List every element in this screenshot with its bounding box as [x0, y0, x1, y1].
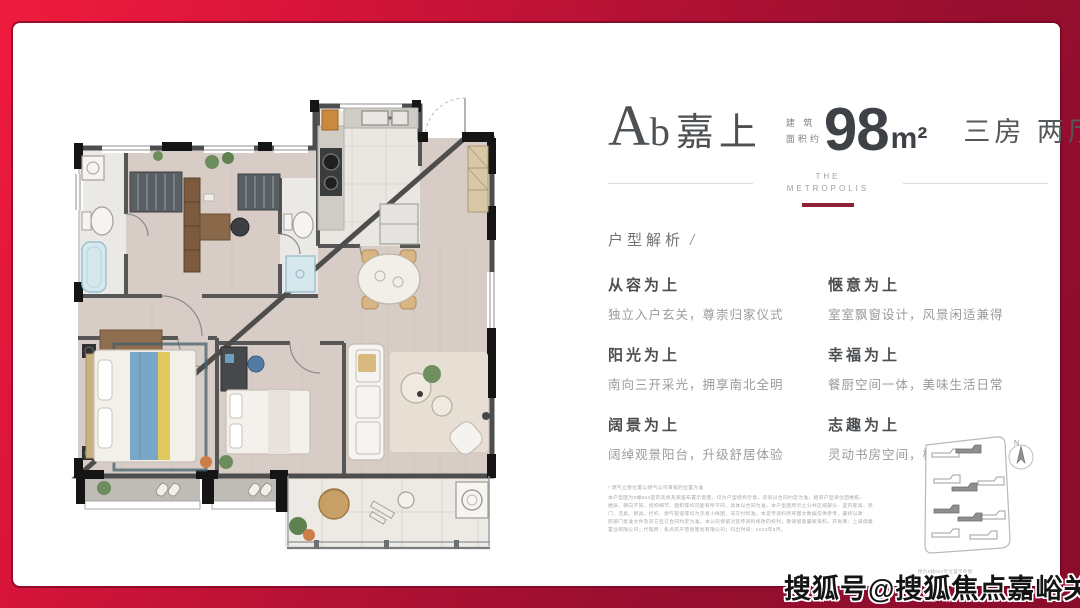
- appliance-icon: [322, 110, 338, 130]
- dining-area: [358, 250, 420, 309]
- plan-name-cn: 嘉上: [676, 112, 762, 154]
- blanket-yellow: [158, 352, 170, 460]
- red-border-frame: Ab嘉上 建 筑 面积约 98 m² 三房 两厅 两卫 THE METROPOL…: [0, 0, 1080, 608]
- slash-decoration: /: [690, 232, 698, 249]
- bathtub-icon: [82, 242, 106, 292]
- gas-pipe-note: * 燃气立管位置以燃气公司审核的位置为准: [608, 485, 913, 493]
- plant-icon: [153, 151, 163, 161]
- floor-plan: [62, 86, 525, 572]
- plant-pot: [303, 529, 315, 541]
- side-table-icon: [398, 492, 414, 508]
- plan-name-sub: b: [650, 109, 670, 154]
- hanging-chair-icon: [319, 489, 349, 519]
- desk-icon: [221, 347, 247, 391]
- feature-item: 阔景为上 阔绰观景阳台，升级舒居体验: [608, 414, 828, 463]
- pillow: [230, 394, 242, 418]
- dresser-icon: [100, 330, 162, 350]
- dining-table-icon: [358, 254, 420, 304]
- feature-item: 阳光为上 南向三开采光，拥享南北全明: [608, 344, 828, 393]
- watermark-text: 搜狐号@搜狐焦点嘉峪关站: [784, 567, 1080, 606]
- section-title: 户型解析/: [608, 229, 1048, 250]
- brand-row: THE METROPOLIS: [608, 171, 1048, 195]
- content-panel: Ab嘉上 建 筑 面积约 98 m² 三房 两厅 两卫 THE METROPOL…: [13, 23, 1060, 586]
- headboard: [86, 354, 94, 458]
- toilet-icon: [293, 212, 313, 238]
- blanket: [268, 390, 290, 454]
- feature-item: 从容为上 独立入户玄关，尊崇归家仪式: [608, 274, 828, 323]
- plant-icon: [205, 155, 219, 169]
- washbasin-icon: [82, 156, 104, 180]
- plant-icon: [219, 455, 233, 469]
- chair-icon: [231, 218, 249, 236]
- master-bedroom: [82, 330, 212, 470]
- shower-icon: [286, 256, 315, 292]
- chair-icon: [248, 356, 264, 372]
- sink-icon: [362, 111, 388, 125]
- decor: [200, 456, 212, 468]
- washer-icon: [456, 482, 488, 518]
- north-label: N: [1014, 440, 1019, 447]
- plan-name: Ab嘉上: [608, 97, 762, 155]
- blanket-blue: [130, 352, 158, 460]
- desk-icon: [200, 214, 230, 240]
- feature-item: 幸福为上 餐厨空间一体，美味生活日常: [828, 344, 1048, 393]
- area-label: 建 筑 面积约: [786, 116, 822, 147]
- plant-icon: [222, 152, 234, 164]
- toilet-icon: [91, 207, 113, 235]
- area-value: 98: [824, 104, 889, 155]
- pillow: [98, 408, 112, 448]
- pillow: [230, 424, 242, 448]
- accent-bar: [802, 203, 854, 207]
- plant-icon: [97, 481, 111, 495]
- living-room: [348, 344, 490, 460]
- bay-windows: [85, 476, 276, 509]
- info-column: Ab嘉上 建 筑 面积约 98 m² 三房 两厅 两卫 THE METROPOL…: [608, 97, 1048, 463]
- north-arrow-icon: N: [1009, 440, 1033, 469]
- legal-disclaimer: * 燃气立管位置以燃气公司审核的位置为准 本户型图为6幢504室的装修及家居布置…: [608, 485, 913, 534]
- plant-icon: [423, 365, 441, 383]
- rule-left: [608, 183, 753, 184]
- floor-plan-drawing: [62, 86, 525, 572]
- feature-item: 惬意为上 室室飘窗设计，风景闲适兼得: [828, 274, 1048, 323]
- entry-cabinet: [468, 146, 488, 212]
- plan-title-row: Ab嘉上 建 筑 面积约 98 m² 三房 两厅 两卫: [608, 97, 1048, 155]
- rule-right: [903, 183, 1048, 184]
- site-plan-map: N 图示6幢504室位置示意图: [918, 431, 1036, 575]
- plan-name-initial: A: [608, 93, 650, 158]
- brand-wordmark: THE METROPOLIS: [753, 171, 903, 195]
- area-unit: m²: [891, 124, 928, 154]
- site-plan-drawing: N: [918, 431, 1036, 563]
- throw-pillow: [358, 354, 376, 372]
- entry-door: [425, 98, 465, 138]
- bookcase-icon: [184, 178, 200, 272]
- pillow: [98, 360, 112, 400]
- room-config: 三房 两厅 两卫: [963, 110, 1080, 149]
